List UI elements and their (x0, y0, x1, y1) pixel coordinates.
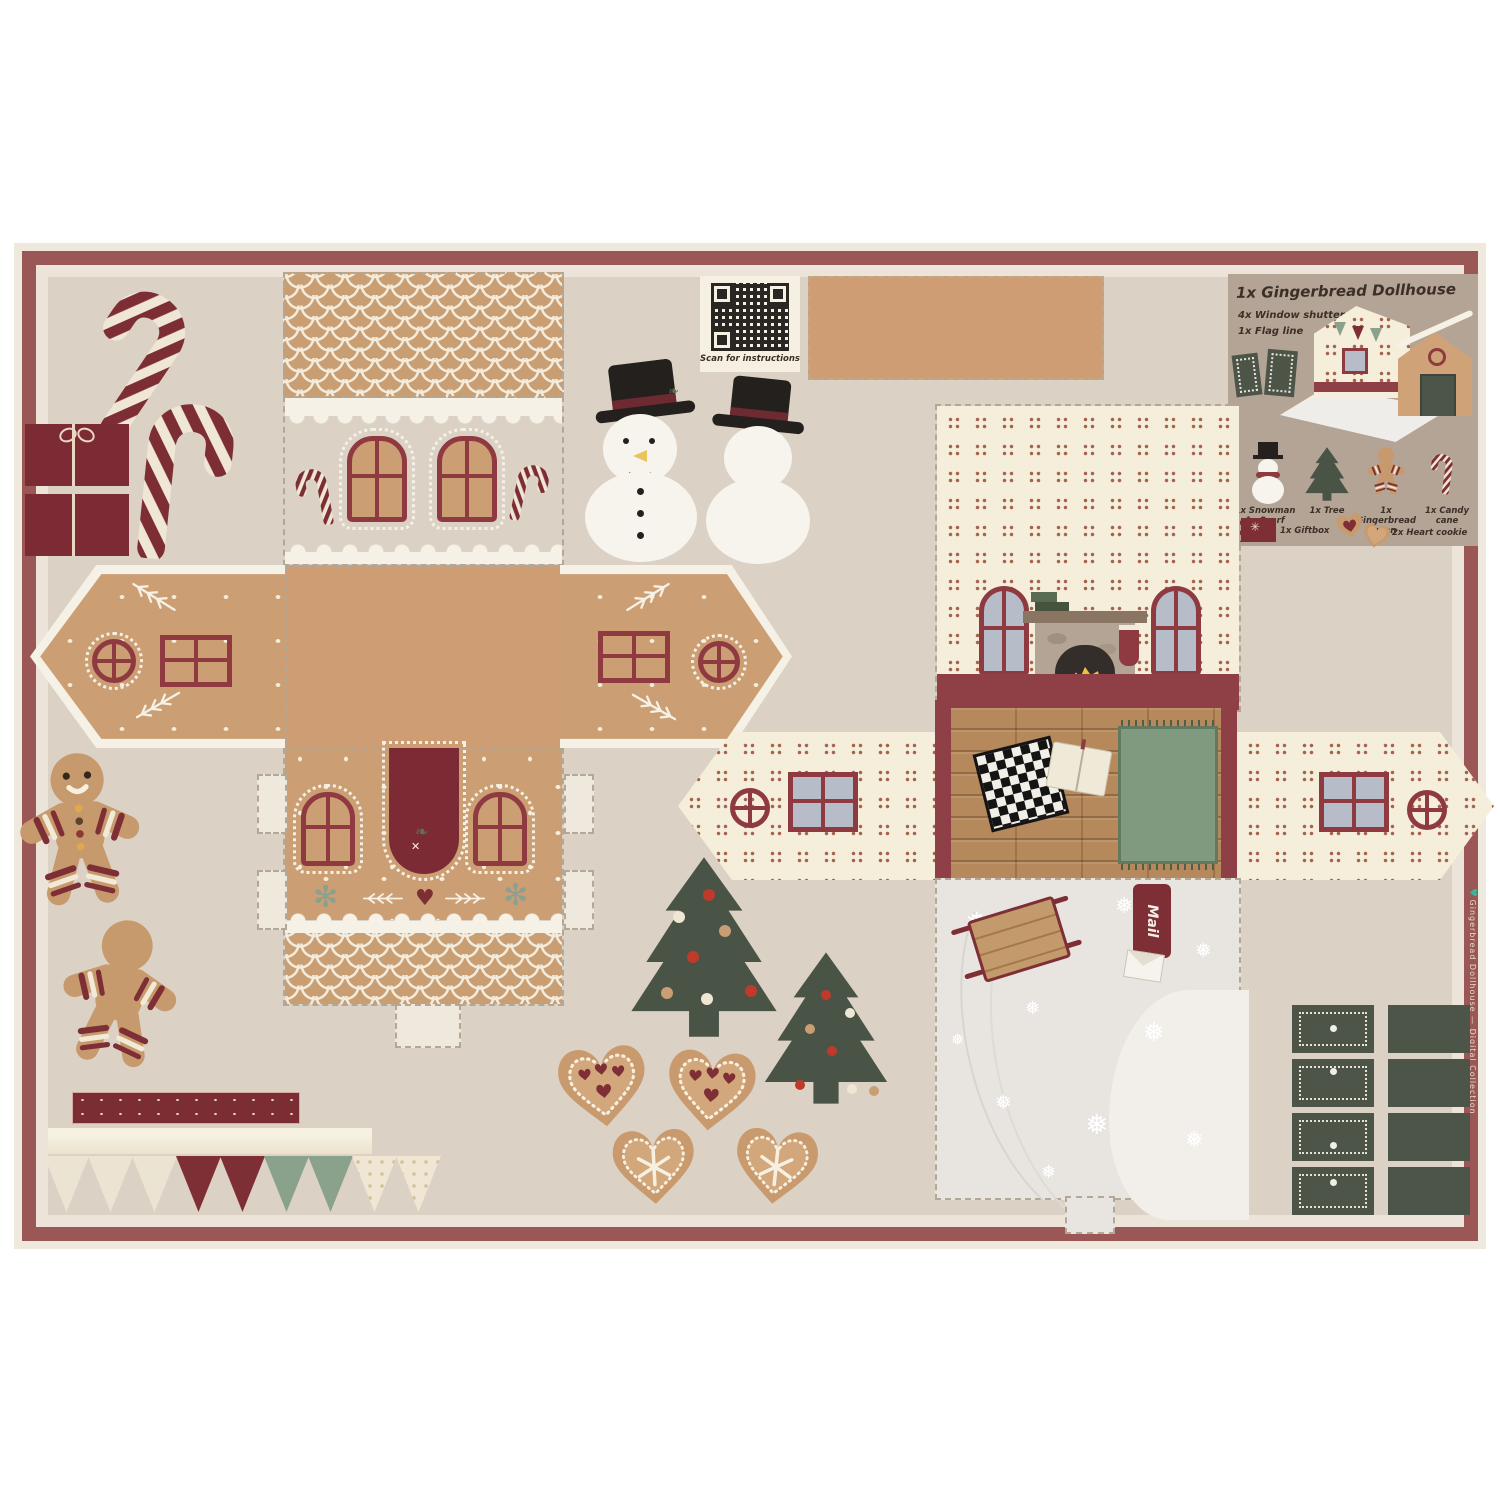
qr-caption: Scan for instructions (700, 354, 800, 364)
gift-on-mantel (1031, 592, 1057, 602)
eye (623, 438, 629, 444)
arched-window (979, 586, 1029, 676)
shutter-icon (1264, 349, 1298, 397)
snow-drift-scallop (285, 541, 562, 552)
carrot-nose (633, 450, 647, 462)
arched-window (347, 436, 407, 522)
ornament (805, 1024, 815, 1034)
heart-icon: ♥ (1467, 888, 1478, 897)
roof-scallop (285, 933, 562, 1004)
mail-tag-label: Mail (1115, 902, 1189, 940)
square-window (598, 631, 670, 683)
hat (1258, 442, 1278, 456)
ornament (847, 1084, 857, 1094)
square-window (1319, 772, 1389, 832)
snowman-back-piece (700, 378, 818, 564)
candy-cane-small-icon (500, 442, 561, 537)
glue-tab (564, 774, 594, 834)
button (637, 532, 644, 539)
shutter-back (1388, 1113, 1470, 1161)
bow-icon: ✕ (411, 840, 420, 853)
body (1252, 476, 1284, 504)
snowflake-motif-icon: ✻ (503, 878, 528, 913)
ornament (703, 889, 715, 901)
legend-item-label: 2x Heart cookie (1392, 528, 1467, 538)
shutter-front (1292, 1059, 1374, 1107)
shutter-icon (1232, 353, 1263, 398)
qr-code-icon (711, 283, 789, 351)
ornament (827, 1046, 837, 1056)
heart-cookie-back-piece (728, 1118, 825, 1217)
mini-window (1342, 348, 1368, 374)
shutter-back (1388, 1005, 1470, 1053)
assembled-dollhouse-illustration (1280, 296, 1475, 444)
baseboard-band (937, 674, 1239, 710)
mistletoe-icon: ❧ (415, 822, 428, 841)
ornament (821, 990, 831, 1000)
rug (1118, 726, 1218, 864)
christmas-tree-piece (625, 853, 783, 1041)
house-side-gable-left-piece (30, 565, 285, 748)
envelope-icon (1123, 949, 1165, 983)
rug-fringe (1121, 864, 1215, 870)
round-window (1428, 348, 1446, 366)
tree-shape (625, 853, 783, 1041)
legend-item-label: 1x Giftbox (1280, 526, 1329, 536)
holly-icon: ❧ (667, 384, 680, 400)
candy-cane-small-icon (284, 447, 343, 541)
snowflake-icon: ❅ (1185, 1128, 1203, 1153)
square-window (788, 772, 858, 832)
candy-cane-legend-icon (1422, 440, 1460, 502)
ornament (745, 985, 757, 997)
snowman-body (706, 478, 810, 564)
round-window (730, 788, 770, 828)
heart-legend-icon (1359, 519, 1392, 552)
legend-panel: 1x Gingerbread Dollhouse 4x Window shutt… (1228, 274, 1478, 546)
scarf-strip-piece (72, 1092, 300, 1124)
arrow-branch-icon (361, 892, 405, 905)
glue-tab (257, 774, 287, 834)
legend-item-label: 1x Candy cane (1418, 506, 1476, 526)
house-back-piece: ❧ ✕ ✻ ✻ ♥ (283, 748, 564, 1006)
candy-cane-large-icon (119, 376, 257, 568)
ornament (673, 911, 685, 923)
door: ❧ ✕ (389, 748, 459, 874)
snowflake-icon: ❅ (1195, 938, 1212, 962)
flag-line-strip-piece (48, 1128, 372, 1154)
shutter-front (1292, 1167, 1374, 1215)
flag-triangle (88, 1156, 133, 1212)
snowflake-icon: ❅ (1041, 1162, 1056, 1183)
snowflake-icon: ❅ (995, 1090, 1012, 1114)
interior-wall-piece (935, 404, 1241, 712)
flag-triangle (220, 1156, 265, 1212)
interior-floor-piece (935, 708, 1237, 878)
gingerbread-man-legend-icon (1366, 446, 1406, 500)
ribbon-star: ✳ (1250, 520, 1260, 534)
snowflake-icon: ❅ (1085, 1108, 1108, 1141)
rug-fringe (1121, 720, 1215, 726)
icing-band (285, 921, 562, 933)
house-side-gable-right-piece (560, 565, 792, 748)
arched-window (301, 792, 355, 866)
snowflake-icon: ❅ (951, 1030, 964, 1049)
house-front-piece (283, 396, 564, 566)
door-jamb (1221, 700, 1237, 878)
eye (649, 438, 655, 444)
qr-finder (767, 283, 789, 305)
tree-legend-icon (1304, 446, 1350, 502)
heart-motif-icon: ♥ (415, 886, 435, 911)
icing-scallop (285, 910, 562, 921)
ornament (661, 987, 673, 999)
house-roof-scallop-piece (283, 272, 564, 400)
flag-triangle (352, 1156, 397, 1212)
snow-base-piece: ❅ ❅ ❅ ❅ ❅ ❅ ❅ ❅ ❅ ❅ Mail (935, 878, 1241, 1200)
bottom-tab (1065, 1196, 1115, 1234)
square-window (160, 635, 232, 687)
snowflake-icon: ❅ (1025, 998, 1040, 1019)
house-base-band (1314, 382, 1410, 392)
interior-roof-right-piece (1237, 732, 1494, 880)
mail-tag: Mail (1133, 884, 1171, 958)
bookmark (1080, 739, 1086, 750)
flag-triangle (264, 1156, 309, 1212)
ornament (869, 1086, 879, 1096)
flag-triangle (308, 1156, 353, 1212)
bow (75, 425, 97, 445)
flag-triangle (132, 1156, 177, 1212)
house-base-piece (285, 565, 564, 752)
ornament (687, 951, 699, 963)
arched-window (1151, 586, 1201, 676)
ornament (701, 993, 713, 1005)
fabric-panel-product-image: ♥ Gingerbread Dollhouse — Digital Collec… (0, 0, 1500, 1500)
snowman-legend-icon (1246, 442, 1290, 504)
shutter-front (1292, 1113, 1374, 1161)
round-window (1407, 790, 1447, 830)
button (637, 510, 644, 517)
round-window (92, 639, 136, 683)
arrow-branch-icon (443, 892, 487, 905)
round-window (698, 641, 740, 683)
snow-drift (285, 552, 562, 564)
bunting-flags-piece (44, 1156, 444, 1214)
fireplace-mantel (1023, 611, 1147, 623)
snow-trim (285, 398, 562, 416)
qr-finder (711, 329, 733, 351)
envelope-flap (1126, 950, 1162, 968)
ornament (719, 925, 731, 937)
giftbox-legend-icon: ✳ (1240, 518, 1276, 542)
christmas-tree-piece (763, 938, 889, 1118)
snow-trim-scallop (285, 416, 562, 427)
gingerbread-man-front-piece (12, 747, 149, 923)
window-shutters-pieces (1292, 1005, 1472, 1217)
arched-window (437, 436, 497, 522)
barn-door (1420, 374, 1456, 418)
snowman-body (585, 472, 697, 562)
giftbox-piece (25, 494, 129, 556)
flag-triangle (396, 1156, 441, 1212)
blank-base-piece (808, 276, 1104, 380)
flag-triangle (44, 1156, 89, 1212)
arched-window (473, 792, 527, 866)
bow (57, 425, 79, 445)
ornament (845, 1008, 855, 1018)
ornament (795, 1080, 805, 1090)
glue-tab (257, 870, 287, 930)
shutter-front (1292, 1005, 1374, 1053)
bottom-tab (395, 1004, 461, 1048)
qr-card: Scan for instructions (700, 276, 800, 372)
door-jamb (935, 700, 951, 878)
glue-tab (564, 870, 594, 930)
shutter-back (1388, 1167, 1470, 1215)
stocking-icon (1119, 625, 1139, 666)
shutter-back (1388, 1059, 1470, 1107)
qr-finder (711, 283, 733, 305)
gift-on-mantel (1035, 602, 1069, 611)
snowman-front-piece: ❧ (575, 362, 707, 562)
giftbox-piece (25, 424, 129, 486)
flag-triangle (176, 1156, 221, 1212)
ribbon (72, 494, 75, 556)
snowflake-icon: ❅ (1143, 1018, 1165, 1048)
heart-cookie-back-piece (608, 1120, 701, 1214)
button (637, 488, 644, 495)
book-spine (1075, 747, 1085, 791)
